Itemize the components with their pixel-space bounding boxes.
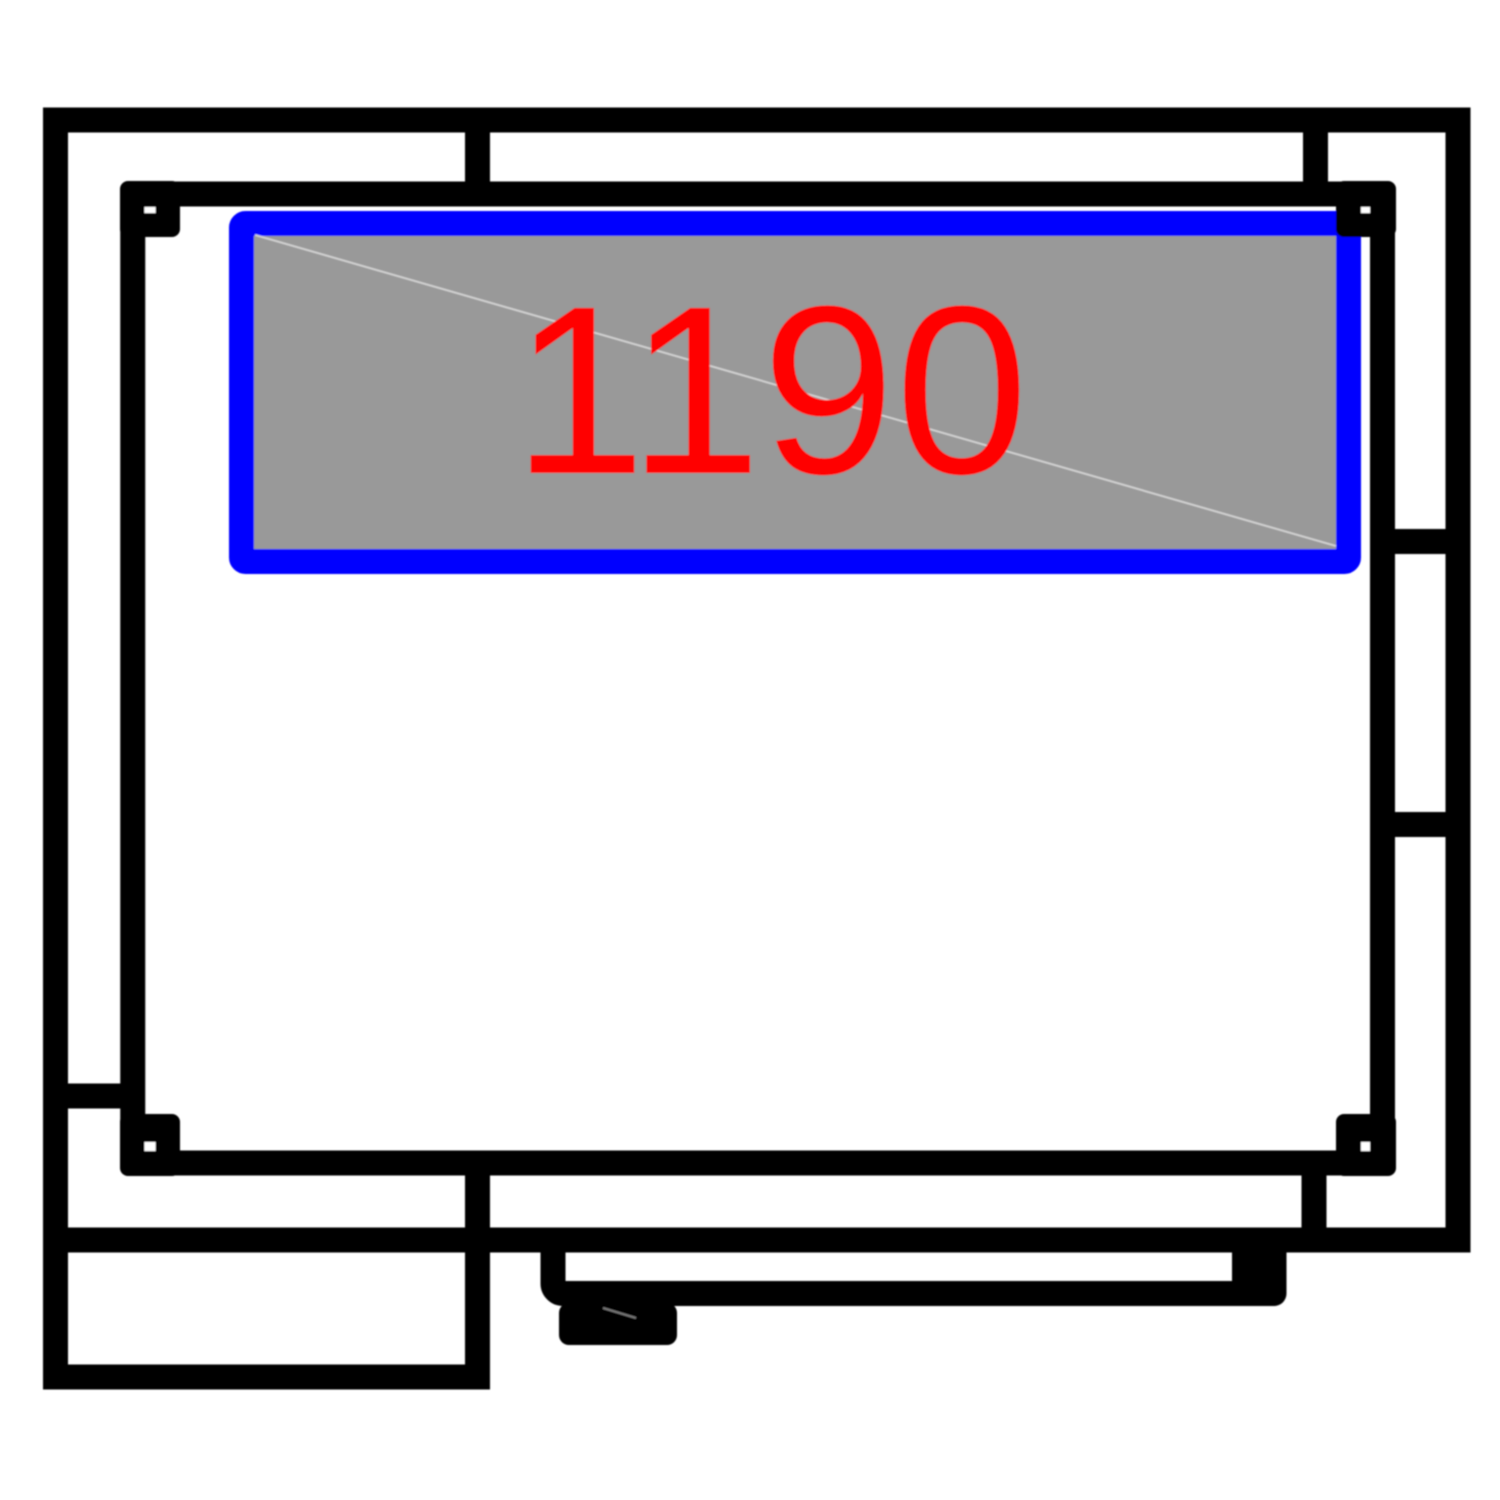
svg-text:1190: 1190	[512, 256, 1028, 524]
